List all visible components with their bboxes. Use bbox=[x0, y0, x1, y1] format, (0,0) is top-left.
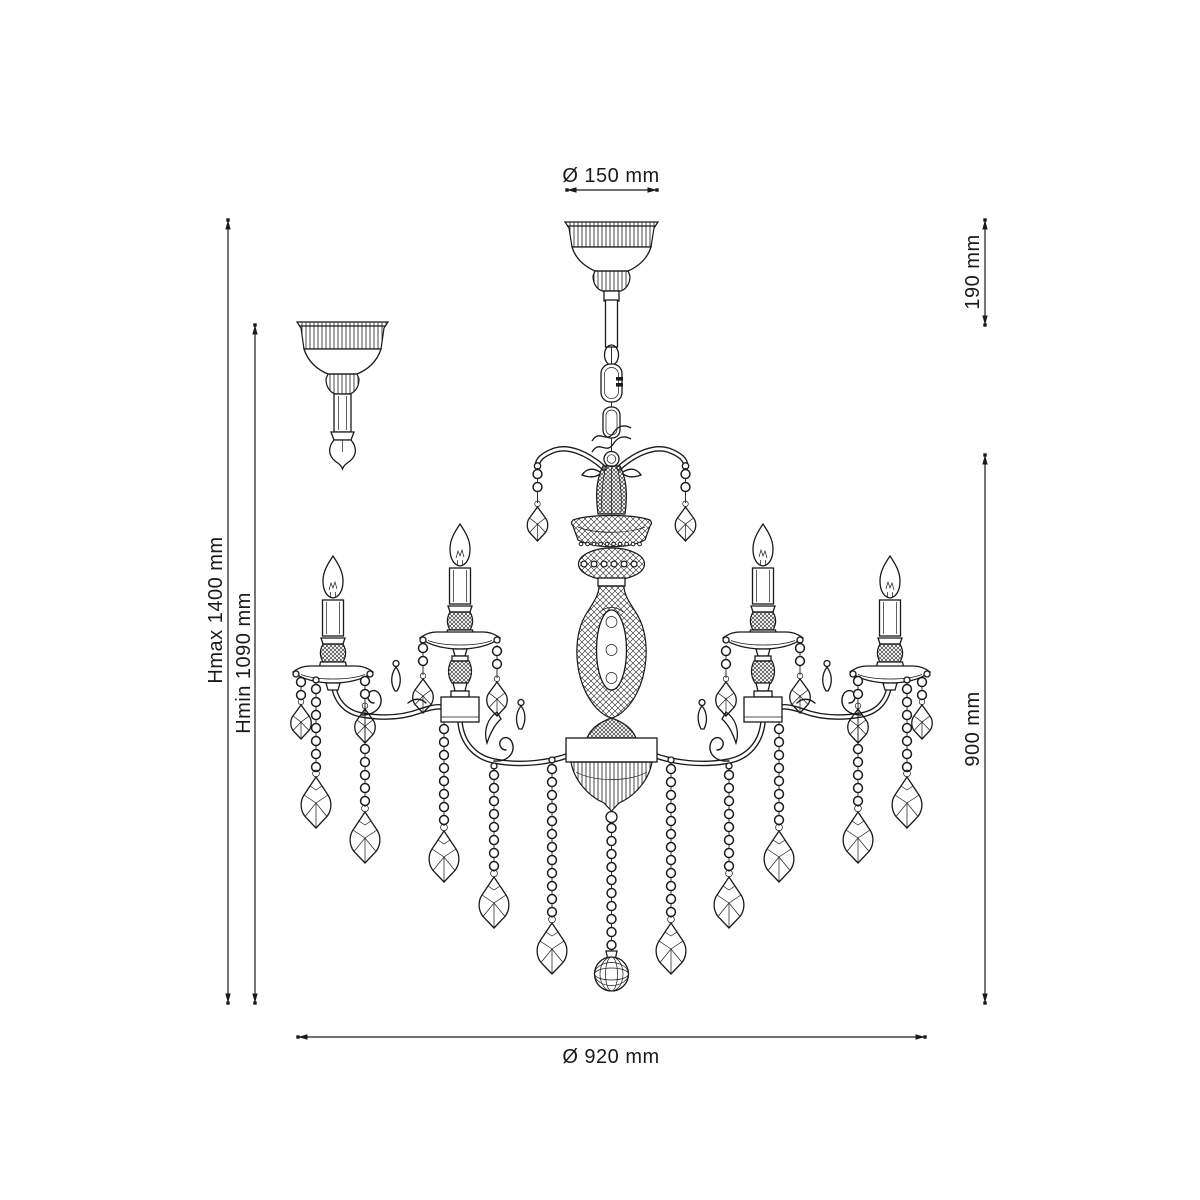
dim-body-height: 900 mm bbox=[962, 453, 988, 1004]
crystal-chain-h bbox=[537, 757, 567, 974]
dim-top-diameter-label: Ø 150 mm bbox=[562, 165, 659, 187]
dim-top-diameter: Ø 150 mm bbox=[562, 165, 659, 193]
crystal-chain-b bbox=[301, 677, 331, 828]
chandelier-dimension-diagram: Ø 150 mm Hmax 1400 mm Hmin 1090 mm 190 m… bbox=[0, 0, 1200, 1200]
ceiling-canopy bbox=[565, 222, 658, 301]
candle-outer bbox=[293, 556, 373, 690]
crystal-chain-d bbox=[413, 642, 434, 713]
dim-body-height-label: 900 mm bbox=[962, 691, 984, 766]
crystal-drop-top bbox=[527, 468, 548, 541]
crystal-chain-f bbox=[429, 722, 459, 882]
dim-body-diameter: Ø 920 mm bbox=[296, 1034, 926, 1068]
crystal-chain-e bbox=[487, 645, 508, 716]
canopy-detail-inset bbox=[297, 322, 388, 469]
dim-height-min-label: Hmin 1090 mm bbox=[233, 592, 255, 734]
suspension-chain bbox=[592, 300, 631, 452]
top-scroll-arm bbox=[534, 449, 604, 469]
arm-junction-block bbox=[441, 697, 479, 722]
crystal-chain-g bbox=[479, 763, 509, 928]
diagram-canvas: Ø 150 mm Hmax 1400 mm Hmin 1090 mm 190 m… bbox=[0, 0, 1200, 1200]
crystal-chain-c bbox=[350, 676, 380, 863]
center-bowl-band bbox=[566, 738, 657, 762]
right-half-mirror bbox=[619, 449, 932, 974]
faceted-ball-finial bbox=[595, 951, 629, 991]
crystal-chain-a bbox=[291, 676, 312, 739]
left-half bbox=[291, 449, 604, 974]
dim-height-max-label: Hmax 1400 mm bbox=[205, 536, 227, 683]
center-column bbox=[566, 452, 657, 823]
dim-suspension-height: 190 mm bbox=[962, 218, 988, 326]
center-bowl bbox=[571, 762, 652, 823]
dim-suspension-height-label: 190 mm bbox=[962, 234, 984, 309]
dim-height-max: Hmax 1400 mm bbox=[205, 218, 231, 1004]
dim-body-diameter-label: Ø 920 mm bbox=[562, 1046, 659, 1068]
dim-height-min: Hmin 1090 mm bbox=[233, 323, 258, 1004]
